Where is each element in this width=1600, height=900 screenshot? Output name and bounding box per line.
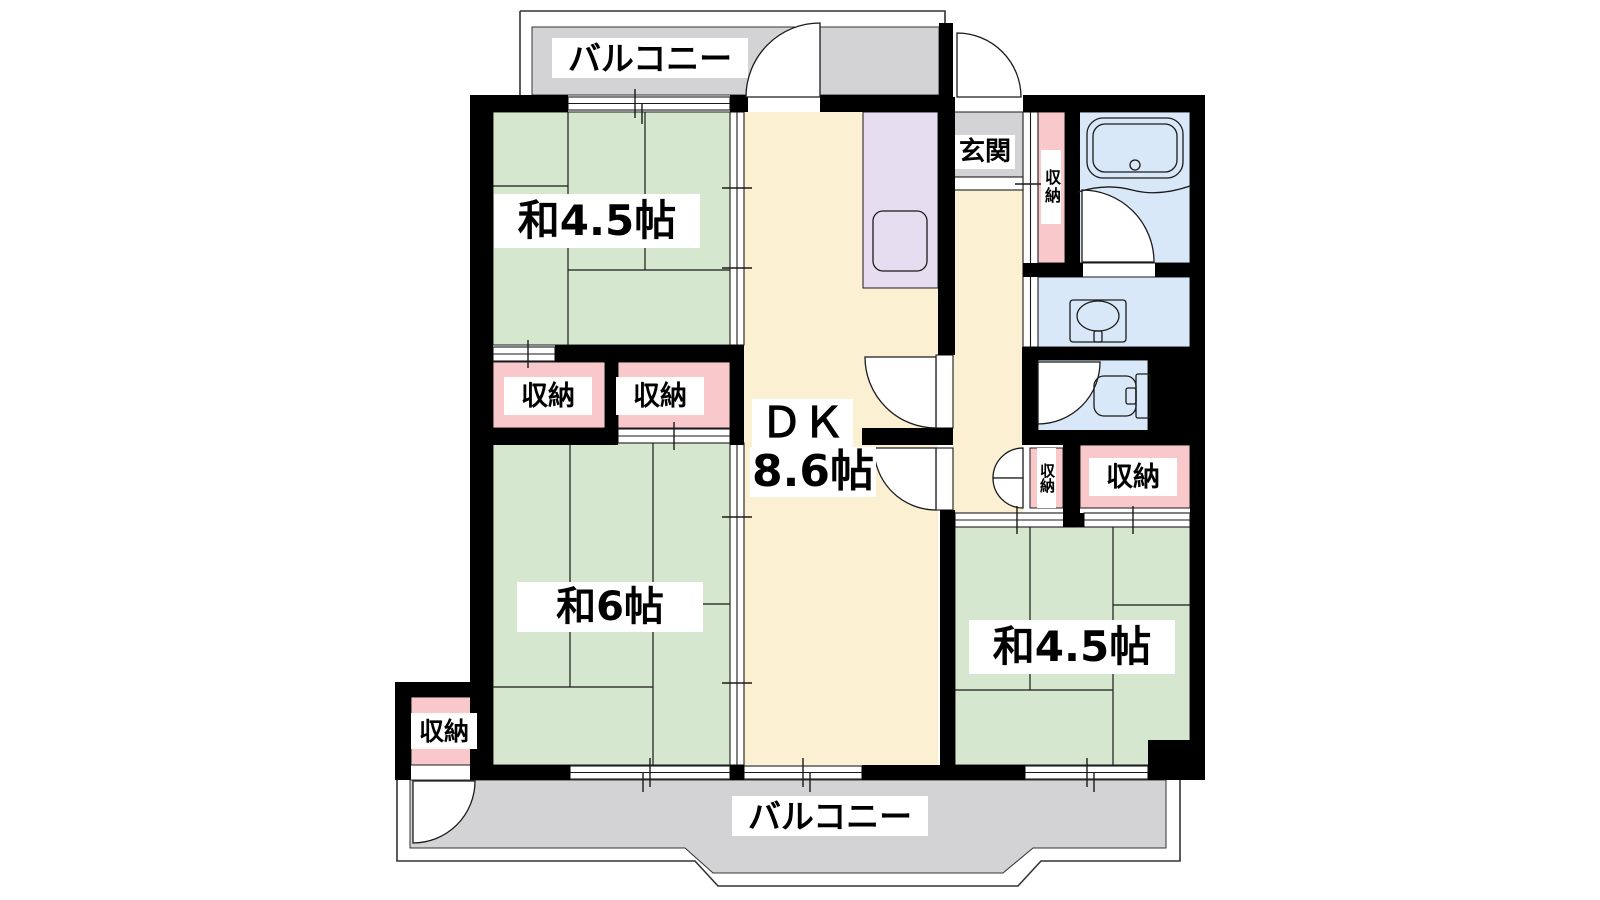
wall-slider-se-pier [1078, 513, 1084, 527]
closet-hall-label: 収納 [1041, 150, 1061, 224]
wall-bottom-stub [940, 740, 955, 768]
entrance-label: 玄関 [955, 135, 1015, 169]
closet-nw-left-label: 収納 [504, 377, 592, 415]
dk-size-label: 8.6帖 [750, 447, 876, 497]
wall-bath-west [1065, 112, 1080, 263]
wall-top-pier [730, 95, 748, 112]
balcony-top-label: バルコニー [552, 38, 748, 78]
washroom-floor [1038, 277, 1190, 347]
wall-dk-bar [862, 428, 953, 445]
closet-se-large-label: 収納 [1089, 458, 1177, 496]
wall-toilet-south [1023, 430, 1205, 445]
doorway-dk-upper [936, 355, 953, 428]
floor-plan-page: バルコニー 和4.5帖 玄関 収納 ＤＫ 8.6帖 収納 収納 和6帖 収納 収… [0, 0, 1600, 900]
wall-balcony-stub [939, 23, 953, 97]
wall-closet-nw-top [555, 345, 744, 362]
wall-bath-south-east [1155, 263, 1205, 277]
wall-top-2 [820, 95, 953, 112]
wall-bottom-corner [1148, 740, 1205, 780]
wall-bottom-1 [478, 765, 570, 780]
wall-closet-se-pier [1063, 445, 1080, 527]
wall-closet-nw-bottom [478, 428, 618, 445]
room-nw-label: 和4.5帖 [494, 194, 700, 248]
wall-dk-se [940, 510, 955, 768]
wall-closet-sw-left [395, 682, 411, 780]
wall-bath-south-west [1023, 263, 1083, 277]
room-sw-label: 和6帖 [517, 582, 703, 632]
balcony-bottom-label: バルコニー [732, 796, 928, 836]
dk-name-label: ＤＫ [752, 399, 853, 447]
closet-se-small-label: 収納 [1037, 448, 1056, 508]
wall-entrance-west [938, 97, 955, 355]
doorway-dk-lower [936, 448, 953, 510]
wall-top-3 [1023, 95, 1205, 112]
closet-nw-right-label: 収納 [616, 377, 704, 415]
closet-sw-label: 収納 [411, 713, 477, 749]
wall-closet-nw-east [730, 345, 744, 445]
door-entrance-icon [957, 33, 1021, 97]
room-se-label: 和4.5帖 [969, 620, 1175, 674]
entrance-step [953, 177, 1023, 190]
wall-bottom-pier [730, 765, 744, 780]
